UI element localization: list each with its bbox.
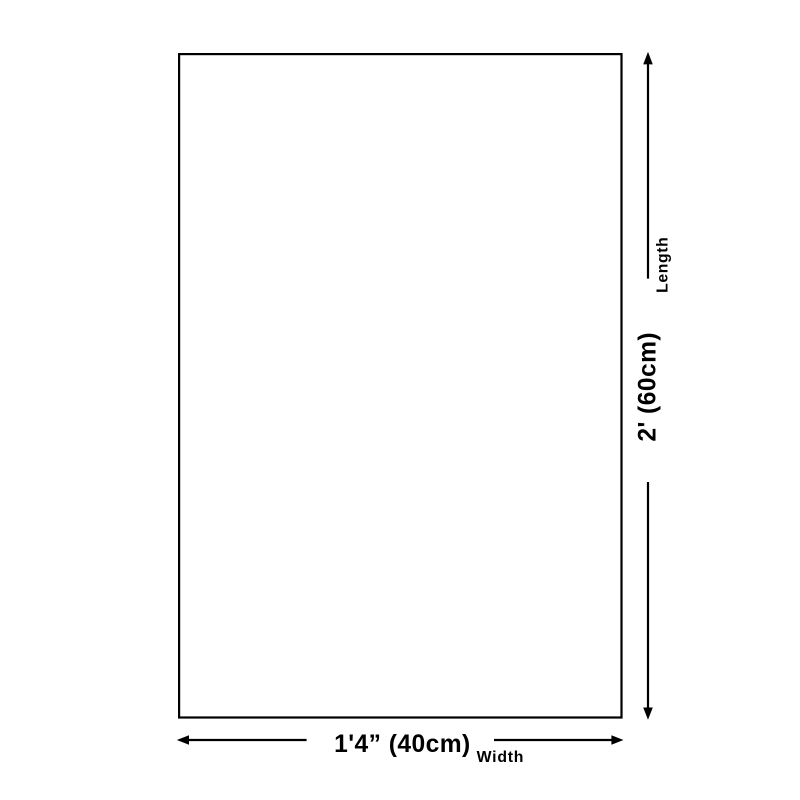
svg-text:1'4” (40cm): 1'4” (40cm) [334,731,471,758]
svg-text:Length: Length [655,237,672,293]
svg-text:Width: Width [477,749,524,766]
svg-text:2' (60cm): 2' (60cm) [634,332,661,442]
